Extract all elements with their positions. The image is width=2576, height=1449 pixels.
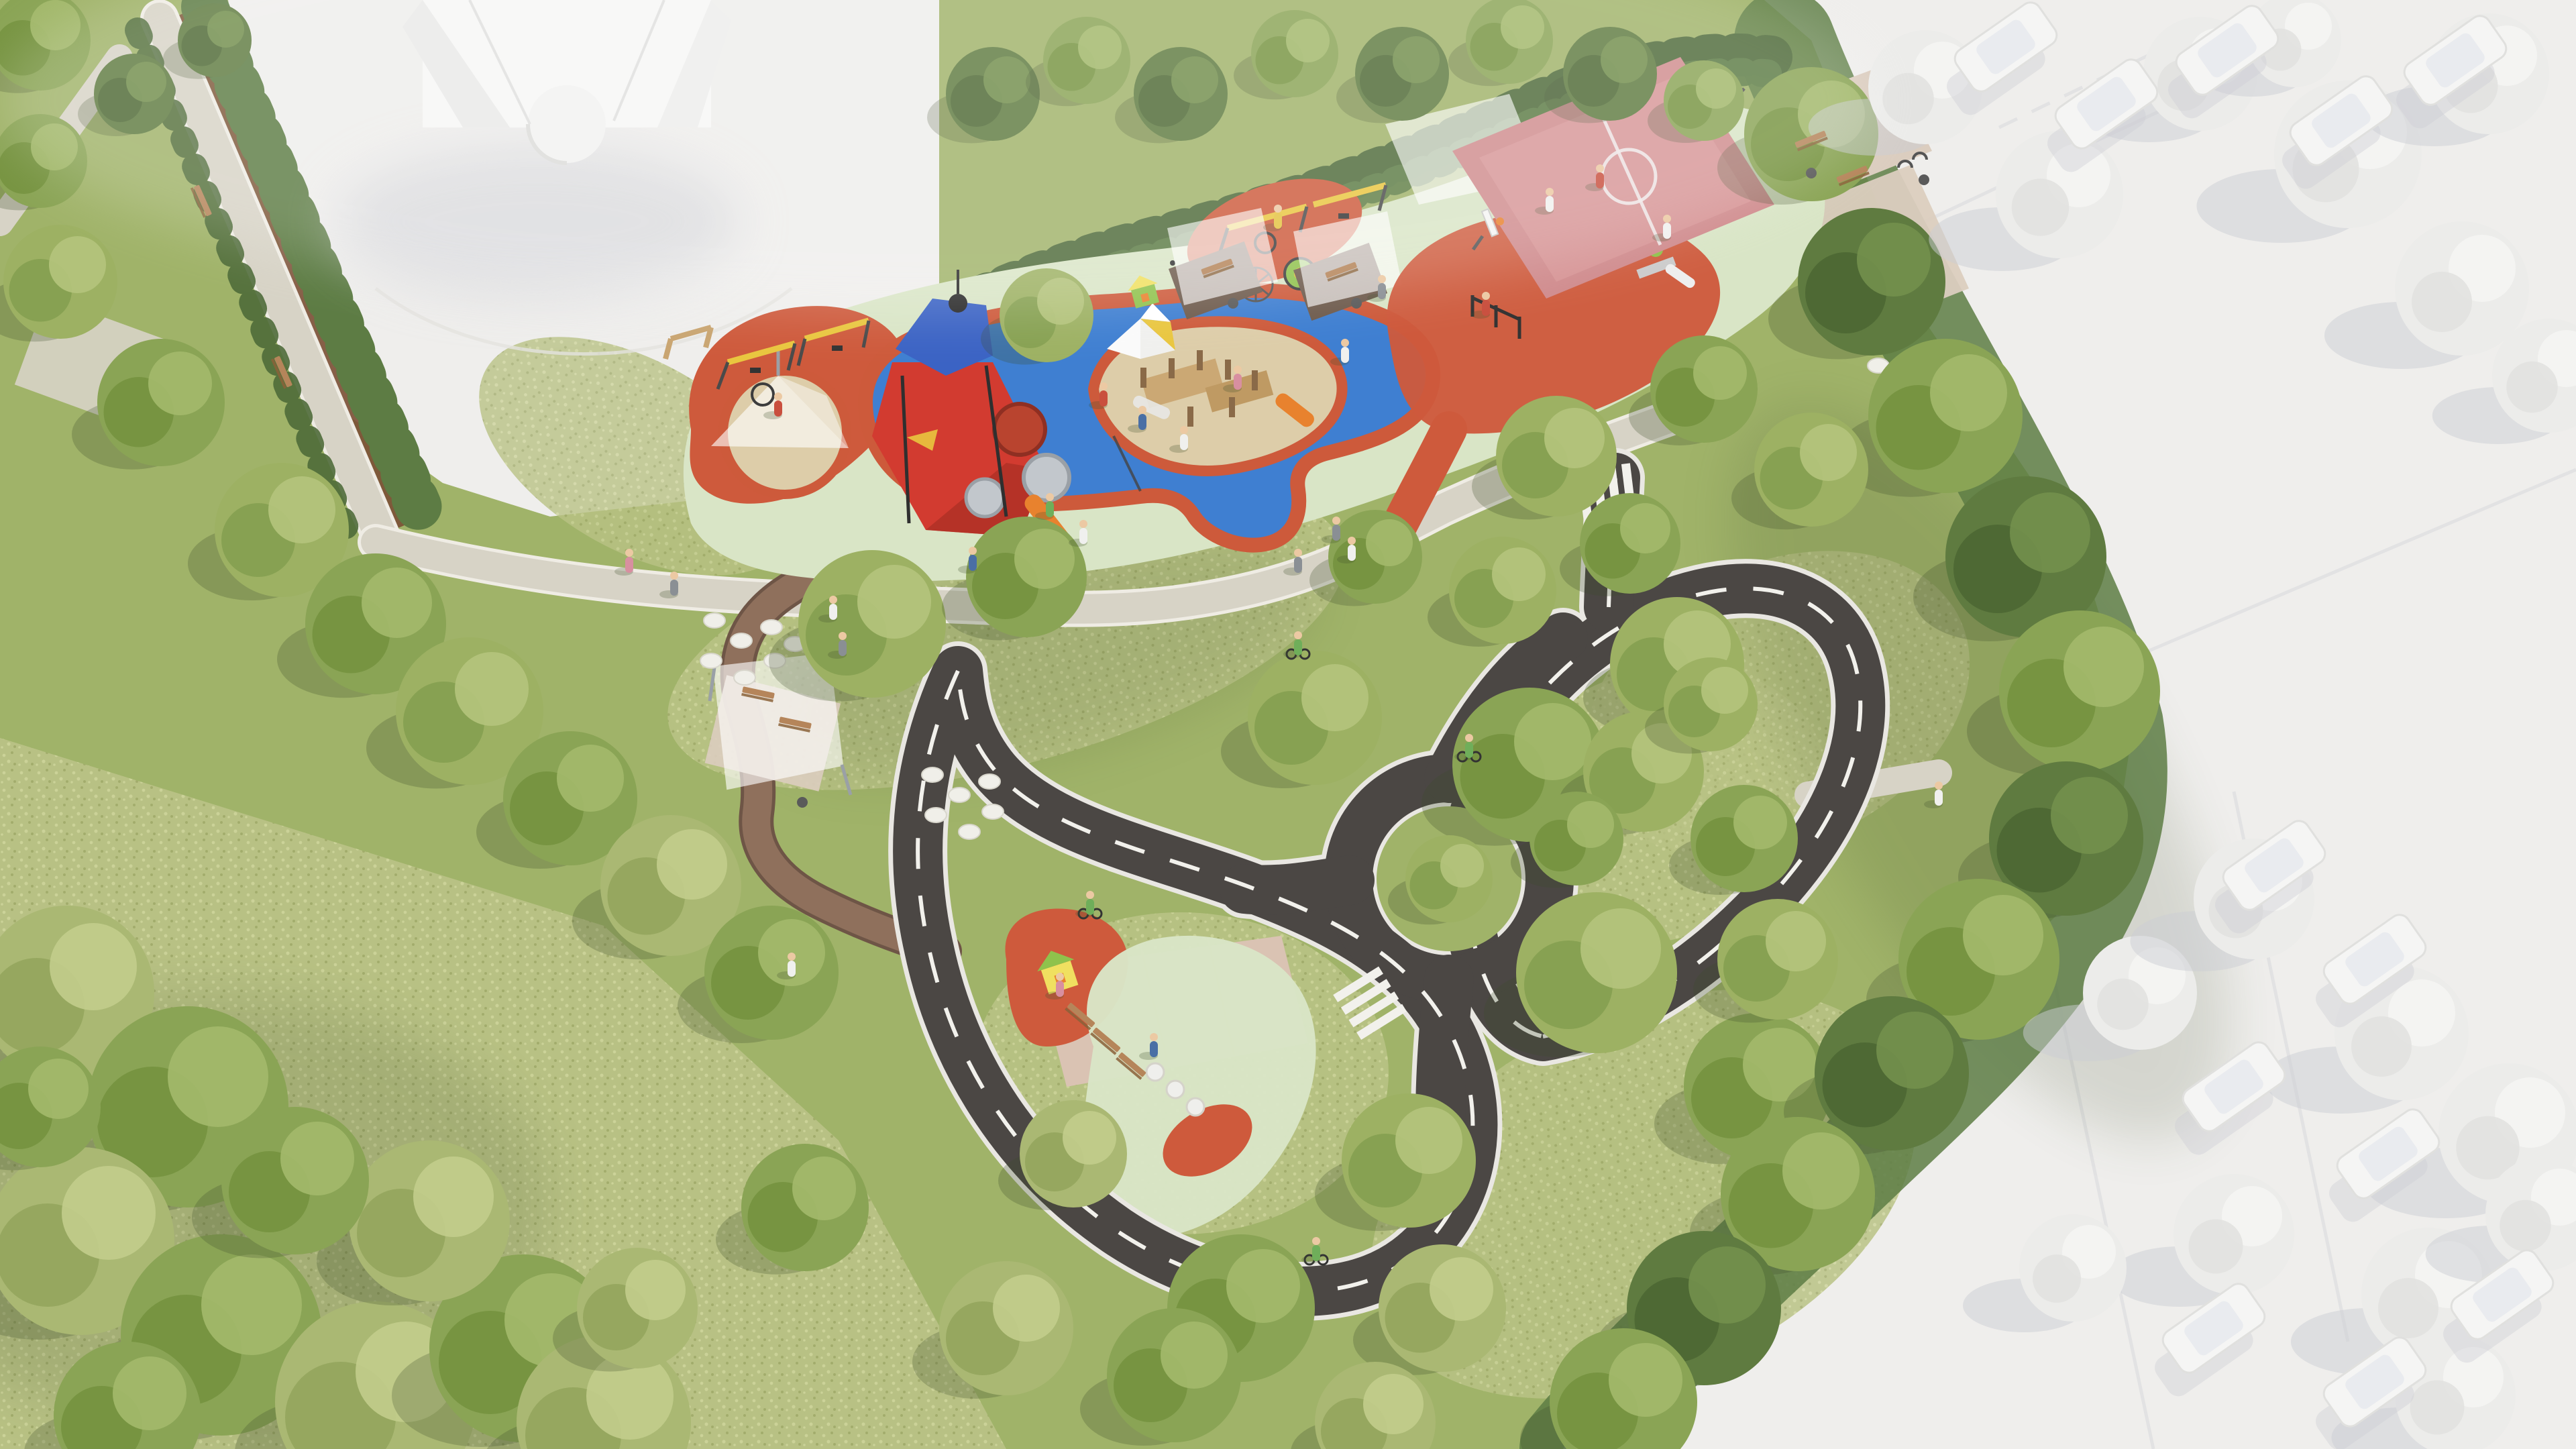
stepping-stone [949,788,970,802]
scene-canvas [0,0,2576,1449]
stepping-stone [982,804,1004,819]
trash-bin [797,797,808,808]
tube-slide [994,404,1045,455]
stepping-stone [959,824,980,839]
stepping-stone [922,767,943,782]
stepping-stone [704,613,725,628]
stepping-stone [734,670,755,685]
tube-slide [1024,455,1069,500]
stepping-stone [731,633,752,648]
stepping-stone [761,620,782,635]
stepping-stone [925,808,947,822]
trash-bin [1351,298,1362,309]
trash-bin [1919,174,1929,185]
stepping-stone [700,653,722,668]
aerial-park-rendering: Bird's-eye 3D architectural rendering of… [0,0,2576,1449]
stepping-stone [979,774,1000,789]
